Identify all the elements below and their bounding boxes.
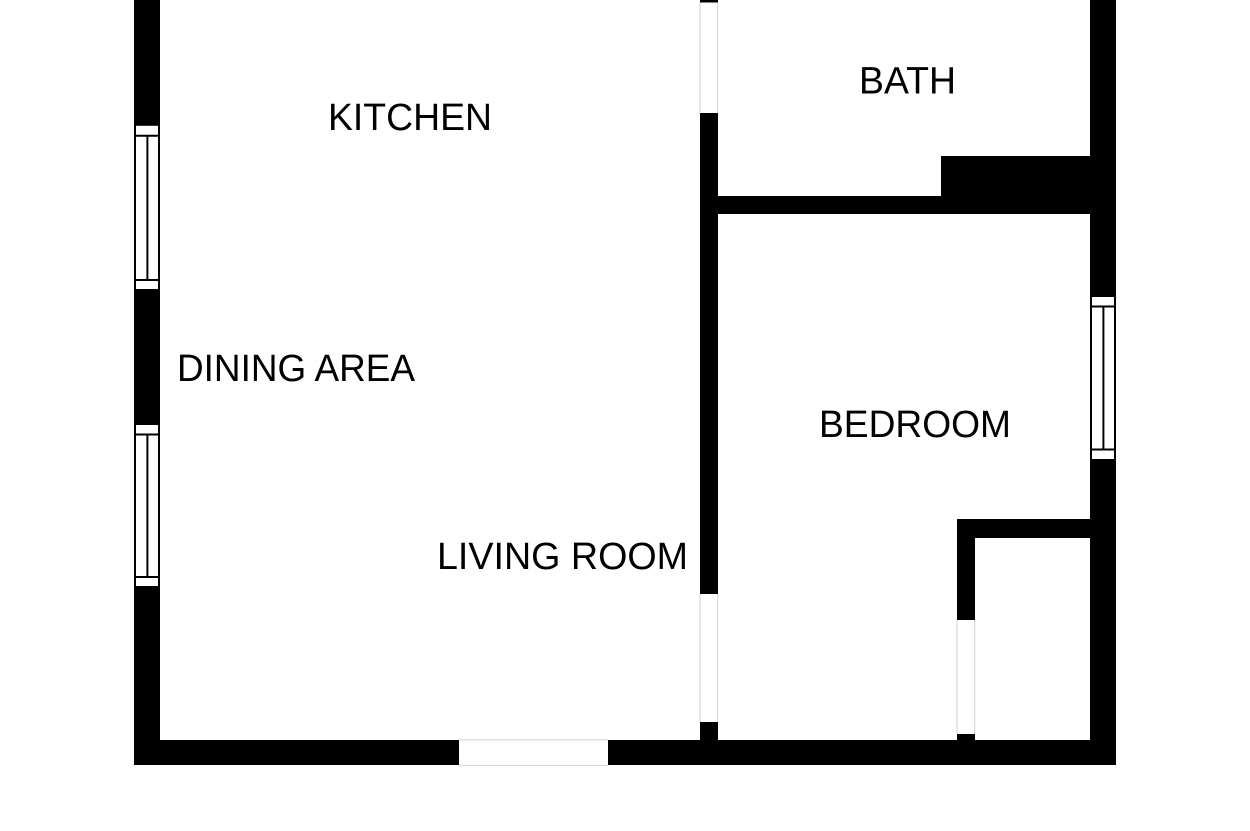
svg-text:DINING AREA: DINING AREA xyxy=(177,348,416,390)
svg-text:KITCHEN: KITCHEN xyxy=(328,97,492,139)
svg-text:LIVING ROOM: LIVING ROOM xyxy=(437,536,688,578)
svg-text:BEDROOM: BEDROOM xyxy=(819,404,1011,446)
svg-text:BATH: BATH xyxy=(859,61,956,103)
